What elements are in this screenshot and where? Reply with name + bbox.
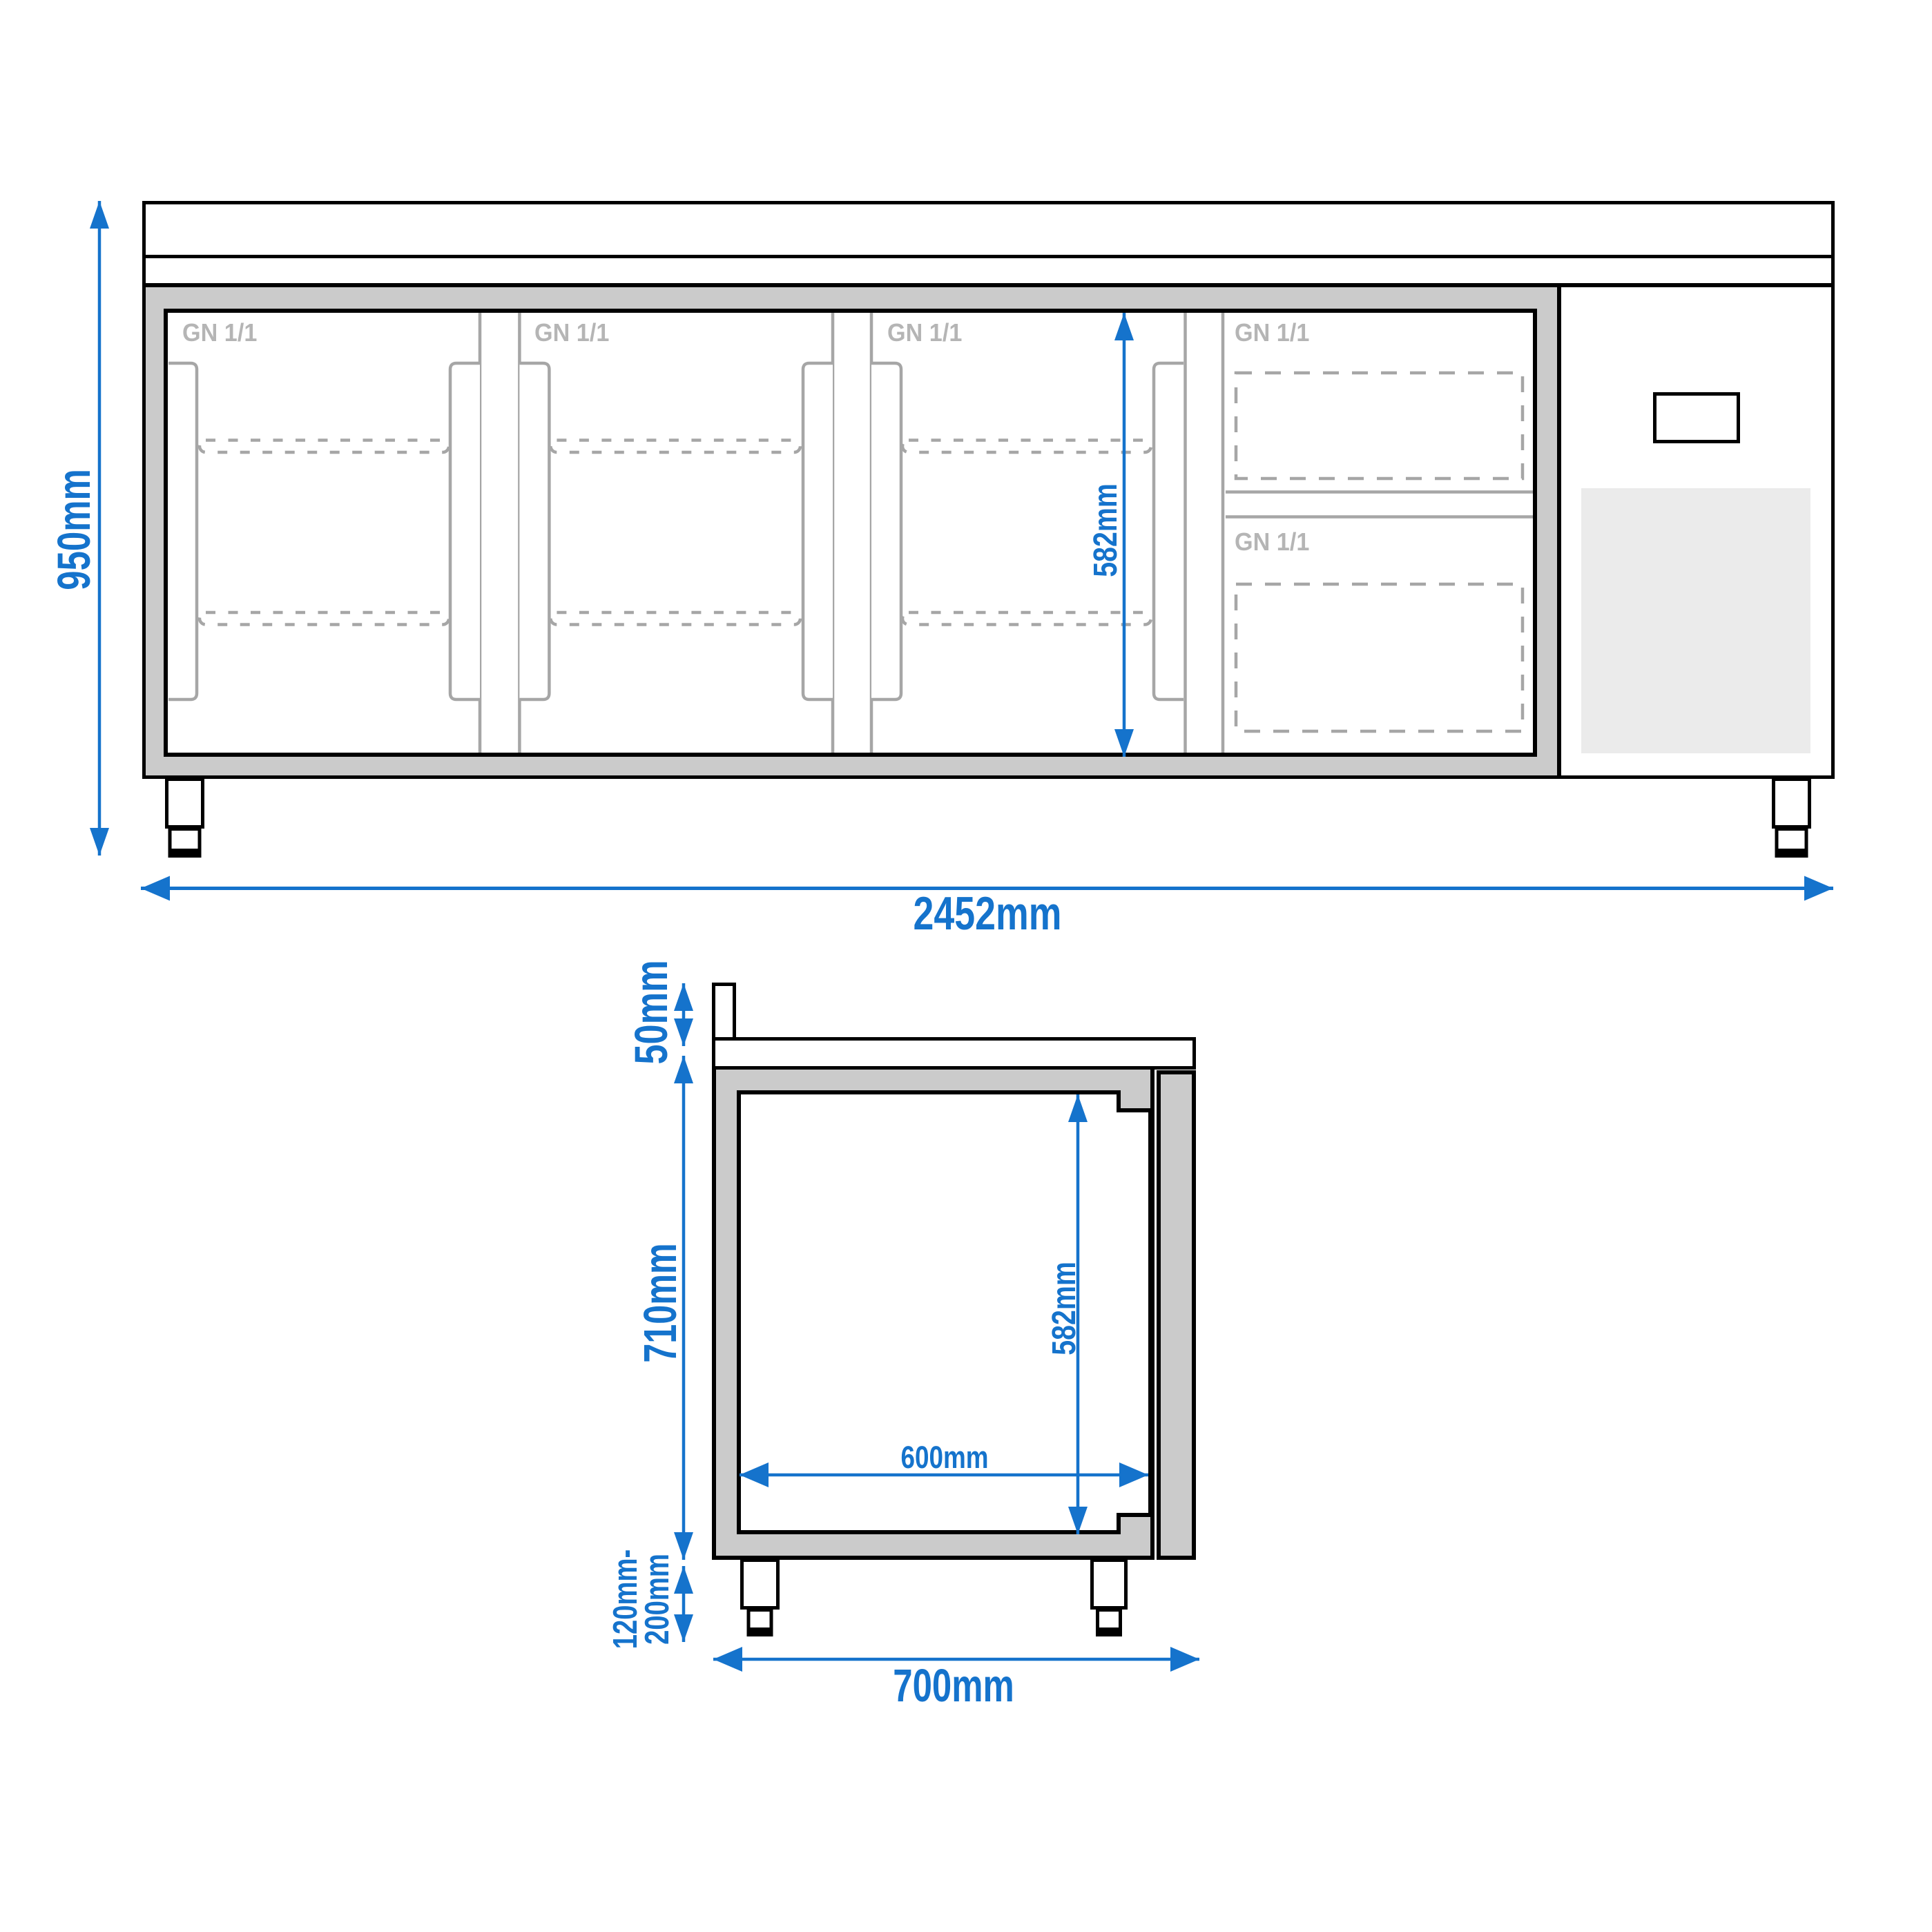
svg-text:582mm: 582mm (1087, 483, 1124, 577)
svg-text:50mm: 50mm (626, 960, 677, 1064)
svg-text:GN 1/1: GN 1/1 (1235, 528, 1309, 556)
svg-text:600mm: 600mm (900, 1440, 988, 1475)
svg-text:200mm: 200mm (639, 1554, 677, 1645)
svg-text:GN 1/1: GN 1/1 (534, 319, 609, 347)
svg-text:950mm: 950mm (48, 469, 99, 590)
svg-text:GN 1/1: GN 1/1 (182, 319, 257, 347)
svg-text:700mm: 700mm (893, 1659, 1014, 1711)
svg-text:GN 1/1: GN 1/1 (887, 319, 962, 347)
svg-text:2452mm: 2452mm (913, 887, 1061, 939)
svg-text:710mm: 710mm (634, 1243, 686, 1362)
svg-text:582mm: 582mm (1045, 1262, 1083, 1355)
svg-text:GN 1/1: GN 1/1 (1235, 319, 1309, 347)
